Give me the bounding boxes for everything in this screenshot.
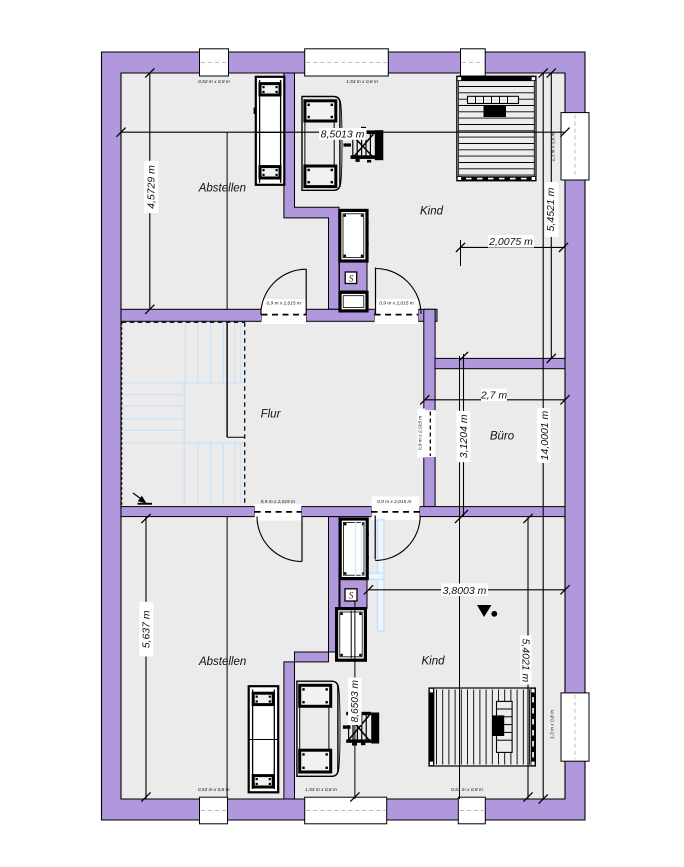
svg-text:1,3 m x 0,8 m: 1,3 m x 0,8 m: [550, 710, 556, 739]
svg-text:1,3 m x 0,8 m: 1,3 m x 0,8 m: [551, 132, 557, 161]
svg-text:0,9 m x 2,015 m: 0,9 m x 2,015 m: [377, 499, 411, 505]
svg-text:8,5013 m: 8,5013 m: [321, 129, 365, 141]
svg-text:5,4021 m: 5,4021 m: [520, 639, 532, 683]
svg-text:0,51 m x 0,8 m: 0,51 m x 0,8 m: [451, 787, 483, 793]
svg-text:Kind: Kind: [420, 206, 444, 218]
svg-text:5,637 m: 5,637 m: [141, 610, 153, 648]
svg-text:Kind: Kind: [421, 656, 445, 668]
svg-text:S: S: [349, 274, 354, 284]
svg-text:0,9 m x 2,015 m: 0,9 m x 2,015 m: [261, 499, 295, 505]
svg-text:1,53 m x 0,8 m: 1,53 m x 0,8 m: [305, 787, 337, 793]
svg-text:3,1204 m: 3,1204 m: [458, 414, 470, 458]
svg-text:0,53 m x 0,8 m: 0,53 m x 0,8 m: [198, 79, 230, 85]
svg-text:S: S: [349, 592, 354, 602]
svg-text:0,9 m x 2,015 m: 0,9 m x 2,015 m: [266, 301, 300, 307]
svg-text:Flur: Flur: [261, 409, 282, 421]
svg-text:14,0001 m: 14,0001 m: [539, 410, 551, 460]
svg-text:Abstellen: Abstellen: [198, 183, 246, 195]
svg-text:5,4521 m: 5,4521 m: [545, 187, 557, 231]
svg-text:0,9 m x 2,015 m: 0,9 m x 2,015 m: [379, 301, 413, 307]
svg-text:2,0075 m: 2,0075 m: [488, 236, 533, 248]
svg-text:4,5729 m: 4,5729 m: [145, 165, 157, 209]
svg-text:2,7 m: 2,7 m: [480, 390, 508, 402]
svg-text:8,6503 m: 8,6503 m: [350, 680, 361, 723]
svg-text:3,8003 m: 3,8003 m: [443, 585, 487, 597]
svg-text:1,53 m x 0,8 m: 1,53 m x 0,8 m: [346, 79, 378, 85]
svg-text:0,9 m x 2,015 m: 0,9 m x 2,015 m: [418, 416, 424, 450]
svg-text:0,53 m x 0,8 m: 0,53 m x 0,8 m: [198, 787, 230, 793]
svg-text:Büro: Büro: [490, 431, 515, 443]
svg-text:Abstellen: Abstellen: [198, 656, 246, 668]
